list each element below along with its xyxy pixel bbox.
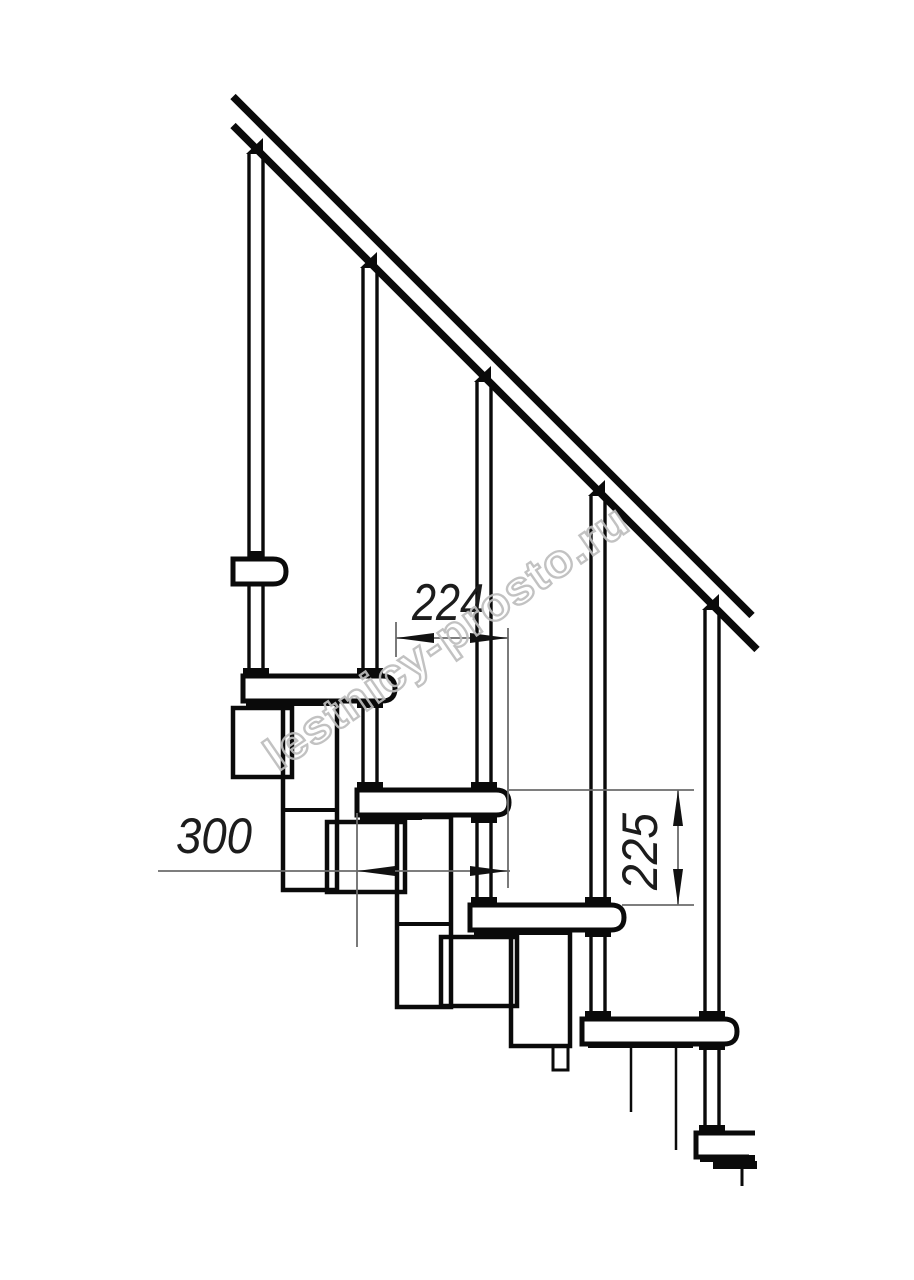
baluster-1 [249,153,263,676]
baluster-4 [591,495,605,1019]
baluster-foot-collar [699,1125,725,1133]
support-column-tail [553,1046,568,1070]
tread-2 [357,790,509,815]
baluster-foot-collar [357,782,383,790]
baluster-under-collar [585,928,611,937]
baluster-collar [471,782,497,790]
baluster-5 [705,609,719,1133]
baluster-foot-collar [585,1011,611,1019]
tread-underside-shadow [360,813,422,820]
technical-drawing-page: 224 300 225 lestnicy-prosto.ru [0,0,914,1280]
baluster-under-collar [471,813,497,823]
arrow-down [673,869,683,905]
cutaway-step-edge [713,1161,757,1169]
baluster-foot-collar [471,897,497,905]
support-column-3 [511,932,570,1046]
arrow-up [673,790,683,826]
tread-underside-shadow [474,928,570,935]
tread-5-truncated [696,1133,755,1157]
baluster-foot-collar [243,668,269,676]
baluster-collar [585,897,611,905]
support-modules [233,701,742,1186]
dimension-225-label: 225 [612,813,668,891]
watermark-text: lestnicy-prosto.ru [254,494,638,780]
staircase-technical-drawing: 224 300 225 lestnicy-prosto.ru [0,0,914,1280]
balusters [249,153,719,1133]
tread-4 [582,1019,737,1044]
baluster-collar [699,1011,725,1019]
tread-upper-small [233,559,286,584]
staircase-structure [233,97,757,1187]
handrail [233,97,757,650]
tread-3 [470,905,624,930]
arrow-left [357,866,395,876]
baluster-collar [248,551,264,559]
tread-fittings [243,551,757,1169]
baluster-under-collar [699,1042,725,1050]
tread-underside-shadow [588,1042,693,1048]
tread-underside-shadow [700,1155,755,1162]
dimension-300-label: 300 [176,808,252,864]
arrow-right [470,866,508,876]
